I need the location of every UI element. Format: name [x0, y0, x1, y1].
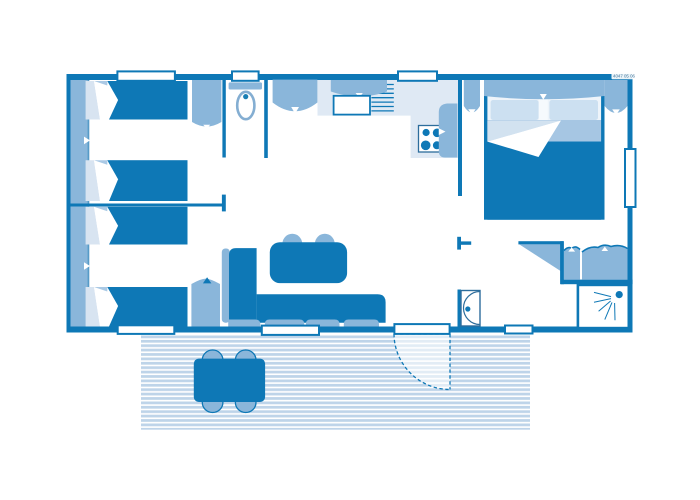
svg-text:4047 05 06: 4047 05 06 — [613, 74, 636, 79]
